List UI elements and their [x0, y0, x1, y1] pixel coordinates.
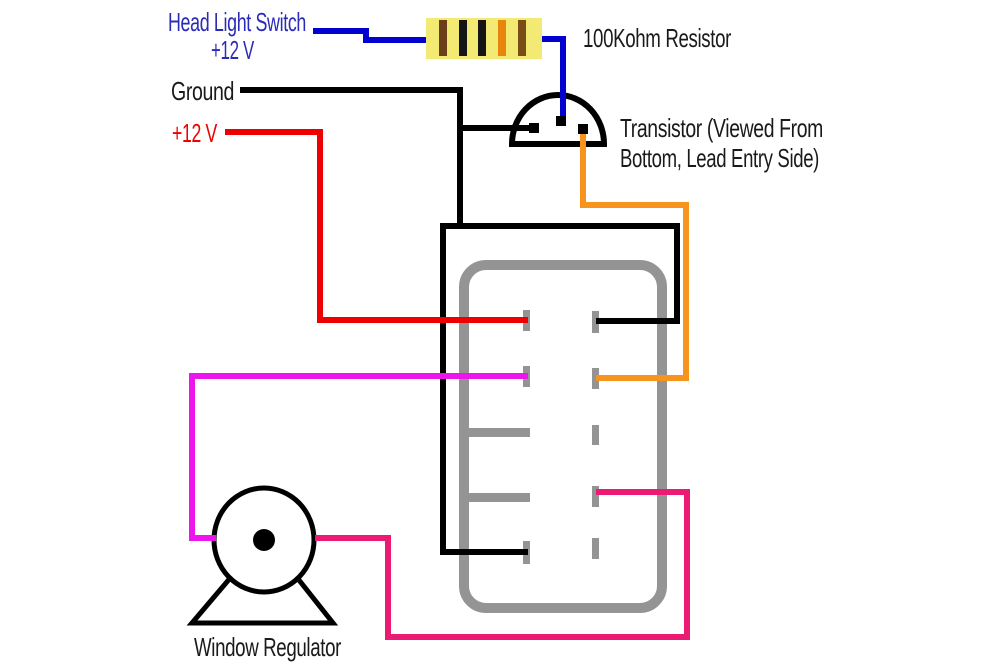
connector-block	[460, 265, 662, 608]
connector-pin-right-5	[592, 538, 599, 559]
connector-pin-right-3	[592, 425, 599, 445]
connector-pin-left-4	[460, 493, 530, 502]
resistor-100k	[426, 18, 542, 59]
wiring-diagram-canvas: Head Light Switch +12 V Ground +12 V 100…	[0, 0, 999, 666]
window-regulator-label: Window Regulator	[194, 632, 342, 662]
resistor-band-4	[498, 20, 506, 56]
wiring-diagram: Head Light Switch +12 V Ground +12 V 100…	[0, 0, 999, 666]
ground-wire	[240, 90, 460, 229]
window-regulator-motor	[192, 488, 333, 623]
resistor-label: 100Kohm Resistor	[583, 23, 732, 53]
transistor-lead-right	[578, 124, 588, 134]
pink-motor-wire	[315, 492, 687, 637]
head-light-switch-label: Head Light Switch	[168, 7, 306, 37]
transistor-label-line2: Bottom, Lead Entry Side)	[620, 143, 819, 173]
headlight-switch-wire	[313, 31, 430, 40]
motor-shaft-dot	[253, 529, 275, 551]
transistor-lead-middle	[556, 116, 566, 126]
transistor-lead-left	[529, 123, 539, 133]
resistor-band-1	[439, 20, 447, 56]
supply-12v-label: +12 V	[172, 118, 218, 148]
head-light-switch-voltage-label: +12 V	[211, 35, 255, 65]
resistor-band-5	[518, 20, 526, 56]
resistor-band-3	[478, 20, 486, 56]
ground-bus-wire	[443, 226, 677, 552]
ground-label: Ground	[171, 76, 234, 106]
resistor-band-2	[459, 20, 467, 56]
transistor-label-line1: Transistor (Viewed From	[620, 113, 823, 143]
connector-pin-left-3	[460, 428, 530, 437]
